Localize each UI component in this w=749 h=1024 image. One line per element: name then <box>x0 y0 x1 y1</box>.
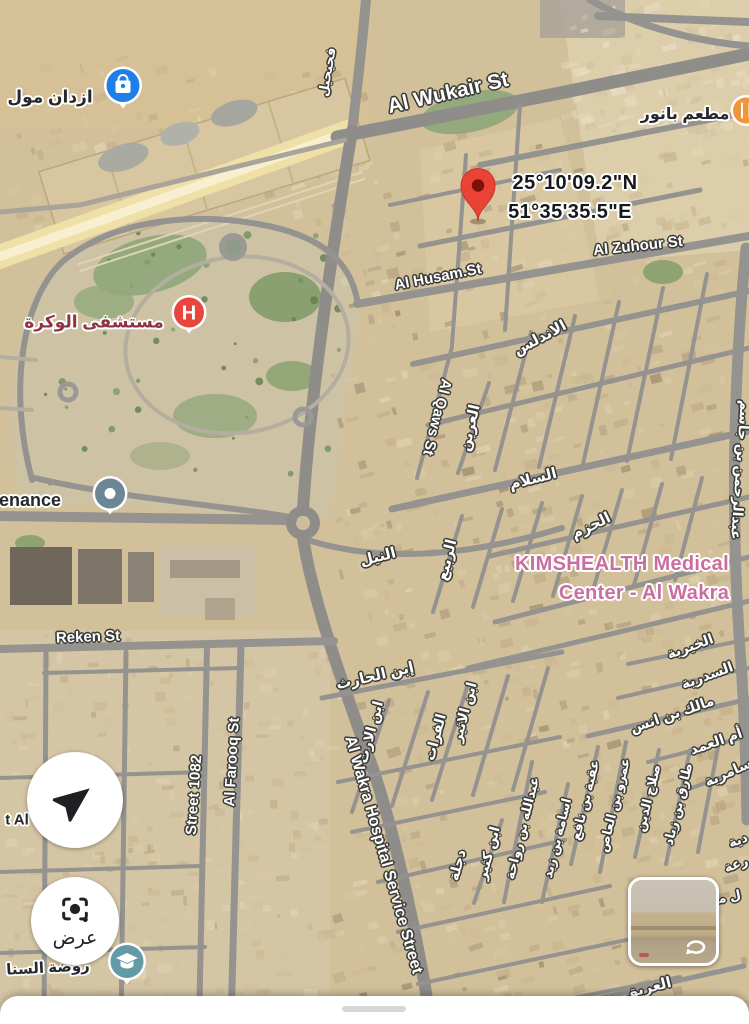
road <box>0 516 292 520</box>
google-maps-app: Al Wukair StAl Husam.StAl Zuhour StAl Qa… <box>0 0 749 1024</box>
restaurant-marker[interactable] <box>729 94 749 133</box>
destination-pin[interactable] <box>456 167 500 232</box>
hospital-marker[interactable]: H <box>169 294 209 351</box>
bottom-sheet[interactable] <box>0 996 749 1024</box>
bottom-sheet-handle[interactable] <box>342 1006 406 1012</box>
street-view-thumbnail[interactable] <box>628 877 719 966</box>
camera-icon <box>57 892 93 926</box>
mall-marker-ezdan[interactable] <box>101 65 145 128</box>
school-marker[interactable] <box>105 941 149 1002</box>
lens-button-label: عرض <box>53 927 98 950</box>
dot-icon <box>105 488 116 499</box>
generic-poi-marker[interactable] <box>90 475 130 532</box>
roundabout <box>291 511 315 535</box>
navigation-arrow-icon <box>43 768 108 833</box>
lens-view-button[interactable]: عرض <box>31 877 119 965</box>
hospital-h-glyph: H <box>182 303 196 325</box>
loop-arrow-icon <box>680 936 710 958</box>
navigation-button[interactable] <box>27 752 123 848</box>
road <box>0 408 32 410</box>
